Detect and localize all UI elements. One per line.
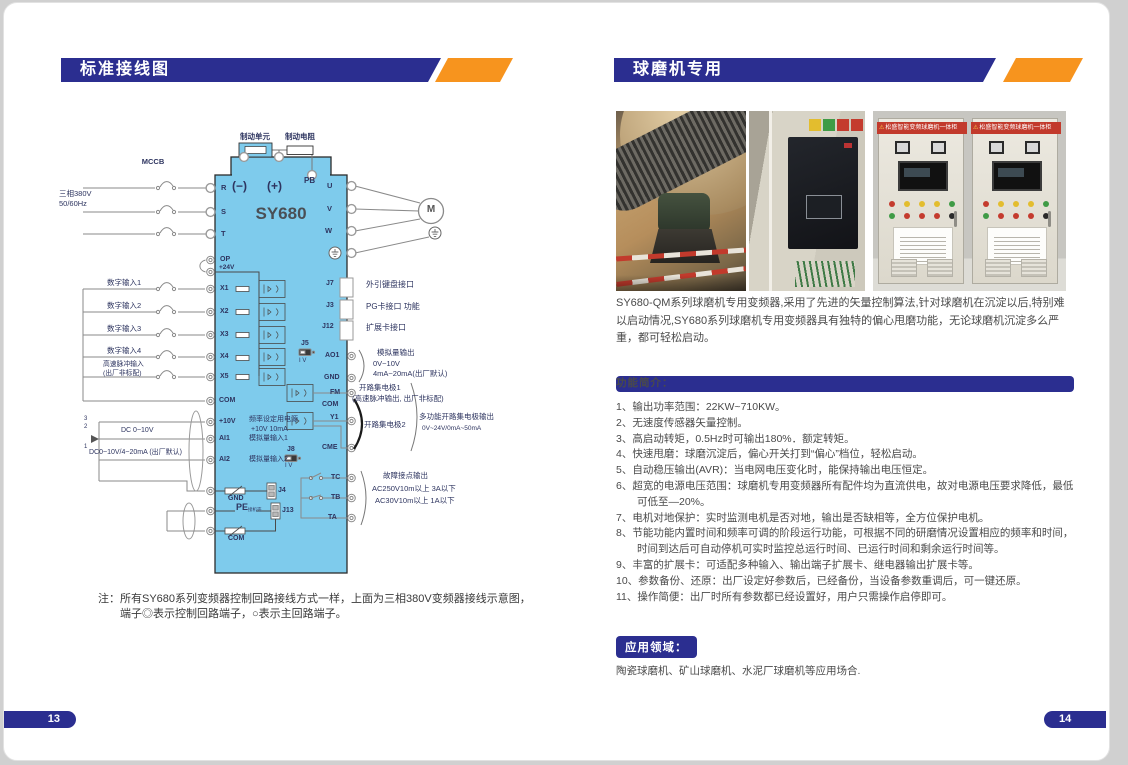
diagram-label: 开路集电极1 (359, 384, 401, 392)
diagram-label: (+) (267, 180, 282, 193)
panel-gauge (895, 141, 910, 154)
wiring-diagram: 制动单元制动电阻MCCB三相380V50/60Hz(−)(+)PBSY680RS… (39, 129, 559, 609)
cabinet-banner: ⚠松盛智能变频球磨机一体柜 (877, 122, 967, 134)
document-page: 标准接线图 球磨机专用 (3, 2, 1110, 761)
diagram-label: PG卡接口 功能 (366, 303, 420, 311)
diagram-label: I V (299, 358, 306, 364)
diagram-label: FM (330, 389, 340, 396)
inverter-nameplate (806, 195, 842, 219)
diagram-label: AI2 (219, 456, 230, 463)
diagram-label: (出厂非标配) (103, 370, 142, 377)
diagram-label: +24V (219, 265, 234, 272)
diagram-label: 数字输入1 (107, 279, 141, 287)
vent (927, 259, 953, 277)
door-handle (1048, 211, 1051, 227)
indicator-lights-row (889, 213, 955, 219)
diagram-label: J7 (326, 280, 334, 287)
inverter-cabinet-photo (749, 111, 865, 291)
diagram-label: J4 (278, 487, 286, 494)
diagram-label: COM (228, 535, 244, 542)
vent (891, 259, 917, 277)
inverter-unit (788, 137, 858, 249)
diagram-label: 扩展卡接口 (366, 324, 406, 332)
diagram-label: TC (331, 474, 340, 481)
cabinet-door-edge (769, 111, 772, 291)
feature-item: 11、操作简便：出厂时所有参数都已经设置好，用户只需操作启停即可。 (616, 590, 1074, 606)
diagram-label: 3 (84, 416, 87, 422)
panel-screen (992, 161, 1042, 191)
control-cabinet: ⚠松盛智能变频球磨机一体柜 (972, 118, 1058, 284)
panel-gauge (989, 141, 1004, 154)
diagram-label: 模拟量输入1 (249, 435, 288, 442)
feature-item: 6、超宽的电源电压范围：球磨机专用变频器所有配件均为直流供电，故对电源电压要求降… (616, 479, 1074, 511)
indicator-lights-row (983, 213, 1049, 219)
diagram-label: J5 (301, 340, 309, 347)
feature-item: 3、高启动转矩，0.5Hz时可输出180%．额定转矩。 (616, 432, 1074, 448)
diagram-label: AC30V10m以上 1A以下 (375, 497, 455, 505)
diagram-label: X1 (220, 285, 229, 292)
diagram-label: 模拟量输入2 (249, 456, 288, 463)
wiring-note: 注：所有SY680系列变频器控制回路接线方式一样，上面为三相380V变频器接线示… (98, 592, 531, 622)
left-header-accent (435, 58, 513, 82)
feature-item: 10、参数备份、还原：出厂设定好参数后，已经备份，当设备参数重调后，可一键还原。 (616, 574, 1074, 590)
cabinet-banner-text: 松盛智能变频球磨机一体柜 (979, 125, 1051, 131)
diagram-label: (−) (232, 180, 247, 193)
applications-title-badge: 应用领域： (616, 636, 697, 658)
diagram-label: 模拟量输出 (377, 349, 415, 357)
photo-row: ⚠松盛智能变频球磨机一体柜 ⚠松盛智能变频球磨机一体柜 (616, 111, 1068, 291)
vent (1021, 259, 1047, 277)
diagram-label: MCCB (142, 158, 165, 166)
diagram-label: 外引键盘接口 (366, 281, 414, 289)
diagram-label: Y1 (330, 414, 339, 421)
feature-item: 1、输出功率范围：22KW~710KW。 (616, 400, 1074, 416)
vent (985, 259, 1011, 277)
diagram-label: SY680 (255, 205, 306, 223)
feature-item: 7、电机对地保护：实时监测电机是否对地，输出是否缺相等，全方位保护电机。 (616, 511, 1074, 527)
diagram-label: OP (220, 256, 230, 263)
diagram-label: GND (324, 374, 340, 381)
door-handle (954, 211, 957, 227)
features-list: 1、输出功率范围：22KW~710KW。 2、无速度传感器矢量控制。 3、高启动… (616, 400, 1074, 605)
applications-text: 陶瓷球磨机、矿山球磨机、水泥厂球磨机等应用场合. (616, 663, 1074, 678)
diagram-label: M (427, 205, 435, 216)
intro-paragraph: SY680-QM系列球磨机专用变频器,采用了先进的矢量控制算法,针对球磨机在沉淀… (616, 295, 1068, 348)
diagram-label: +10V (219, 418, 236, 425)
diagram-label: 多功能开路集电极输出 (419, 413, 494, 421)
diagram-label: J3 (326, 302, 334, 309)
diagram-label: CME (322, 444, 338, 451)
diagram-label: COM (322, 401, 338, 408)
right-page-header: 球磨机专用 (614, 58, 996, 82)
cabinet-banner: ⚠松盛智能变频球磨机一体柜 (971, 122, 1061, 134)
diagram-label: 2 (84, 424, 87, 430)
diagram-label: +10V 10mA (251, 426, 288, 433)
indicator-square (823, 119, 835, 131)
diagram-label: I V (285, 463, 292, 469)
indicator-square (809, 119, 821, 131)
diagram-label: J8 (287, 446, 295, 453)
diagram-label: 50/60Hz (59, 200, 87, 208)
diagram-label: S (221, 208, 226, 216)
right-page-title: 球磨机专用 (633, 61, 723, 78)
diagram-label: 0V~24V/0mA~50mA (422, 426, 481, 433)
diagram-label: TA (328, 514, 337, 521)
warning-icon: ⚠ (879, 125, 884, 131)
diagram-label: W (325, 227, 332, 235)
diagram-label: TB (331, 494, 340, 501)
diagram-label: 制动单元 (240, 133, 270, 141)
diagram-label: J13 (282, 507, 294, 514)
diagram-label: U (327, 182, 332, 190)
diagram-label: (高速脉冲输出, 出厂非标配) (352, 395, 444, 403)
diagram-label: DC 0~10V (121, 427, 154, 434)
features-title-badge: 功能简介： (616, 376, 1074, 392)
diagram-label: 频率设定用电源 (249, 416, 298, 423)
indicator-square (851, 119, 863, 131)
control-cabinets-photo: ⚠松盛智能变频球磨机一体柜 ⚠松盛智能变频球磨机一体柜 (873, 111, 1066, 291)
note-line-1: 注：所有SY680系列变频器控制回路接线方式一样，上面为三相380V变频器接线示… (98, 592, 531, 607)
diagram-label: X3 (220, 331, 229, 338)
inverter-led (844, 143, 852, 148)
diagram-label: X5 (220, 373, 229, 380)
page-number-badge-left: 13 (4, 711, 76, 728)
left-page-title: 标准接线图 (80, 61, 170, 78)
diagram-label: 0V~10V (373, 360, 400, 368)
feature-item: 2、无速度传感器矢量控制。 (616, 416, 1074, 432)
diagram-label: PE (236, 503, 248, 512)
diagram-label: 数字输入2 (107, 302, 141, 310)
feature-item: 4、快速甩磨：球磨沉淀后，偏心开关打到“偏心”档位，轻松启动。 (616, 447, 1074, 463)
diagram-label: T (221, 230, 226, 238)
diagram-label: R (221, 184, 226, 192)
diagram-label: 数字输入3 (107, 325, 141, 333)
feature-item: 8、节能功能内置时间和频率可调的阶段运行功能，可根据不同的研磨情况设置相应的频率… (616, 526, 1074, 558)
diagram-label: AC250V10m以上 3A以下 (372, 485, 456, 493)
diagram-label: X4 (220, 353, 229, 360)
right-header-accent (1003, 58, 1083, 82)
feature-item: 5、自动稳压输出(AVR)：当电网电压变化时，能保持输出电压恒定。 (616, 463, 1074, 479)
page-number-badge-right: 14 (1044, 711, 1106, 728)
indicator-lights-row (889, 201, 955, 207)
indicator-lights-row (983, 201, 1049, 207)
diagram-label: AI1 (219, 435, 230, 442)
panel-gauge (931, 141, 946, 154)
ball-mill-photo (616, 111, 746, 291)
diagram-label: 三相380V (59, 190, 92, 198)
indicator-square (837, 119, 849, 131)
diagram-label: COM (219, 397, 235, 404)
diagram-label: 数字输入4 (107, 347, 141, 355)
left-page-header: 标准接线图 (61, 58, 441, 82)
diagram-label: 1 (84, 444, 87, 450)
panel-gauge (1025, 141, 1040, 154)
diagram-label: J12 (322, 323, 334, 330)
floor-shadow (616, 275, 746, 291)
diagram-label: X2 (220, 308, 229, 315)
panel-screen (898, 161, 948, 191)
diagram-label: AO1 (325, 352, 339, 359)
diagram-label: V (327, 205, 332, 213)
cabinet-wiring (795, 261, 855, 287)
note-line-2: 端子◎表示控制回路端子，○表示主回路端子。 (120, 607, 531, 622)
feature-item: 9、丰富的扩展卡：可适配多种输入、输出端子扩展卡、继电器输出扩展卡等。 (616, 558, 1074, 574)
diagram-labels: 制动单元制动电阻MCCB三相380V50/60Hz(−)(+)PBSY680RS… (39, 129, 559, 609)
diagram-label: 接机壳 (248, 508, 262, 513)
diagram-label: 故障接点输出 (383, 472, 428, 480)
warning-icon: ⚠ (973, 125, 978, 131)
diagram-label: 制动电阻 (285, 133, 315, 141)
cabinet-banner-text: 松盛智能变频球磨机一体柜 (885, 125, 957, 131)
diagram-label: PB (304, 177, 315, 185)
control-cabinet: ⚠松盛智能变频球磨机一体柜 (878, 118, 964, 284)
diagram-label: 高速脉冲输入 (103, 361, 144, 368)
mill-motor (658, 193, 710, 233)
diagram-label: 开路集电极2 (364, 421, 406, 429)
diagram-label: 4mA~20mA(出厂默认) (373, 370, 447, 378)
diagram-label: DC0~10V/4~20mA (出厂默认) (89, 449, 182, 456)
